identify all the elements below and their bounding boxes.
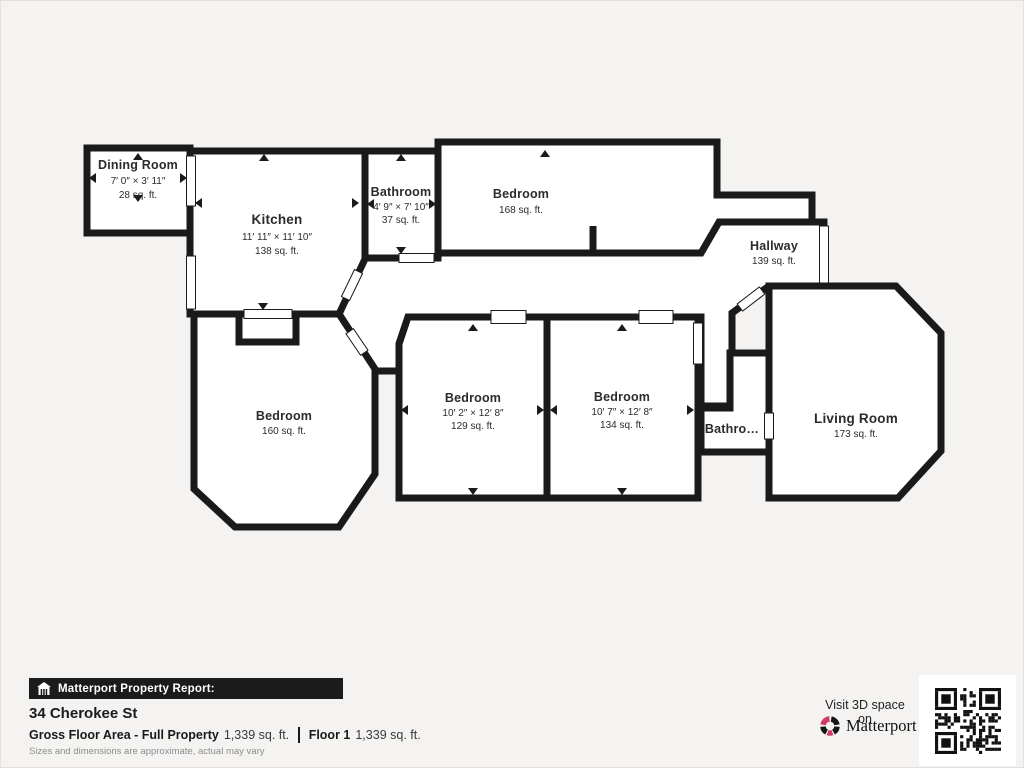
property-address: 34 Cherokee St [29,705,137,722]
room-name: Bathro… [705,422,759,436]
room-dims: 10′ 2″ × 12′ 8″ [442,408,504,419]
gross-area-label: Gross Floor Area - Full Property [29,728,219,742]
room-area: 173 sq. ft. [834,429,878,440]
room-living-outline [769,286,941,498]
room-name: Dining Room [98,158,178,172]
room-area: 168 sq. ft. [499,205,543,216]
window-opening [694,323,703,364]
room-area: 28 sq. ft. [119,190,157,201]
door-opening [187,156,196,206]
room-dims: 7′ 0″ × 3′ 11″ [111,176,166,187]
room-area: 138 sq. ft. [255,246,299,257]
door-opening [399,254,434,263]
floor-plan: Dining Room 7′ 0″ × 3′ 11″ 28 sq. ft. Ki… [1,1,1024,768]
gross-area-value: 1,339 sq. ft. [224,728,289,742]
qr-tile [919,675,1016,766]
room-name: Kitchen [252,212,303,227]
window-opening [820,226,829,283]
room-area: 37 sq. ft. [382,215,420,226]
floor-label: Floor 1 [309,728,351,742]
label-bedroom-mid-right: Bedroom 10′ 7″ × 12′ 8″ 134 sq. ft. [591,390,653,431]
qr-code [935,688,1001,754]
room-name: Living Room [814,411,898,426]
report-banner-label: Matterport Property Report: [58,683,215,695]
label-bathroom-small: Bathro… [705,422,759,436]
matterport-logo-icon [819,715,841,737]
room-area: 129 sq. ft. [451,421,495,432]
separator [298,727,300,743]
door-opening [491,311,526,324]
room-area: 139 sq. ft. [752,256,796,267]
room-dims: 11′ 11″ × 11′ 10″ [242,232,313,243]
label-bedroom-mid-left: Bedroom 10′ 2″ × 12′ 8″ 129 sq. ft. [442,391,504,432]
room-name: Bathroom [371,185,432,199]
room-name: Hallway [750,239,798,253]
room-area: 134 sq. ft. [600,420,644,431]
room-area: 160 sq. ft. [262,426,306,437]
room-dims: 10′ 7″ × 12′ 8″ [591,407,653,418]
floor-value: 1,339 sq. ft. [355,728,420,742]
property-report-page: Dining Room 7′ 0″ × 3′ 11″ 28 sq. ft. Ki… [0,0,1024,768]
door-opening [639,311,673,324]
room-name: Bedroom [256,409,312,423]
room-name: Bedroom [445,391,501,405]
matterport-brand: Matterport [819,715,917,737]
floor-area-metrics: Gross Floor Area - Full Property 1,339 s… [29,727,421,743]
room-name: Bedroom [493,187,549,201]
room-dims: 4′ 9″ × 7′ 10″ [373,202,429,213]
room-name: Bedroom [594,390,650,404]
building-icon [37,682,51,695]
report-banner: Matterport Property Report: [29,678,343,699]
matterport-wordmark: Matterport [846,716,917,736]
window-opening [187,256,196,309]
door-opening [244,310,292,319]
disclaimer-text: Sizes and dimensions are approximate, ac… [29,746,265,757]
door-opening [765,413,774,439]
